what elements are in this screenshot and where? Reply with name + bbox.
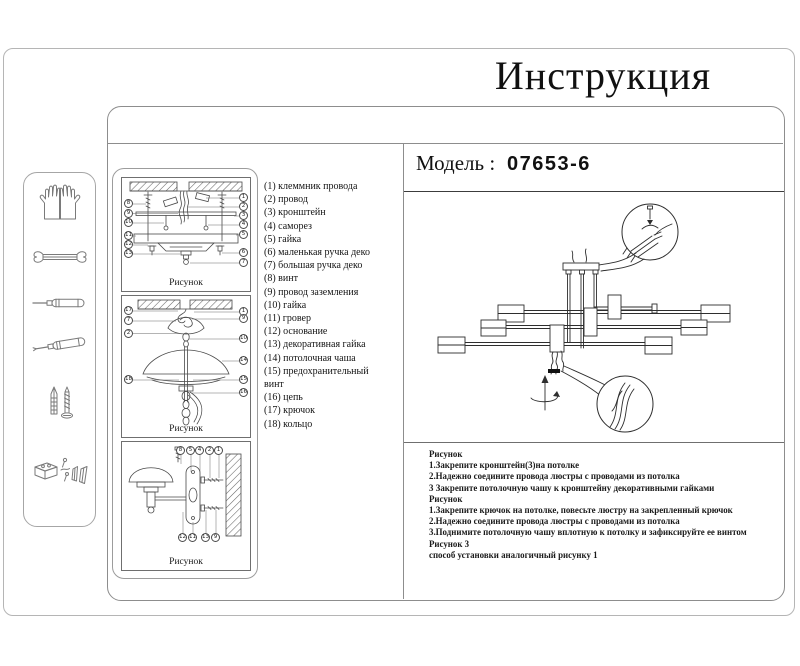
instruction-line: 2.Надежно соедините провода люстры с про… (429, 516, 759, 527)
part-item: (18) кольцо (264, 418, 386, 431)
anchor-and-screw-icon (43, 385, 77, 421)
callout-number: 17 (124, 306, 133, 315)
part-item: (8) винт (264, 272, 386, 285)
part-item: (6) маленькая ручка деко (264, 246, 386, 259)
part-item: (11) гровер (264, 312, 386, 325)
part-item: (10) гайка (264, 299, 386, 312)
callout-number: 11 (188, 533, 197, 542)
callout-number: 9 (239, 314, 248, 323)
instruction-line: способ установки аналогичный рисунку 1 (429, 550, 759, 561)
figure-3-drawing (122, 442, 250, 570)
instruction-line: Рисунок (429, 494, 759, 505)
part-item: (14) потолочная чаша (264, 352, 386, 365)
callout-number: 4 (239, 220, 248, 229)
callout-number: 13 (201, 533, 210, 542)
callout-number: 2 (239, 202, 248, 211)
chandelier-assembly-diagram (404, 196, 784, 440)
callout-number: 7 (124, 316, 133, 325)
callout-number: 11 (124, 231, 133, 240)
callout-number: 6 (239, 248, 248, 257)
part-item: (2) провод (264, 193, 386, 206)
figure-1-box: 8910111213 1234567 Рисунок (121, 177, 251, 292)
part-item: (4) саморез (264, 220, 386, 233)
assembly-instructions: Рисунок1.Закрепите кронштейн(3)на потолк… (429, 449, 759, 561)
instruction-line: 2.Надежно соедините провода люстры с про… (429, 471, 759, 482)
part-item: (17) крючок (264, 404, 386, 417)
callout-number: 16 (239, 388, 248, 397)
callout-number: 3 (239, 211, 248, 220)
instruction-line: 3.Поднимите потолочную чашу вплотную к п… (429, 527, 759, 538)
callout-number: 5 (239, 230, 248, 239)
instruction-sheet: Инструкция (0, 0, 800, 666)
instruction-line: Рисунок 3 (429, 539, 759, 550)
callout-number: 12 (124, 240, 133, 249)
callout-number: 9 (124, 209, 133, 218)
callout-number: 9 (211, 533, 220, 542)
callout-number: 13 (124, 249, 133, 258)
callout-number: 18 (124, 375, 133, 384)
part-item: (5) гайка (264, 233, 386, 246)
callout-number: 2 (124, 329, 133, 338)
gloves-icon (36, 181, 83, 221)
callout-number: 10 (239, 334, 248, 343)
wrench-icon (32, 247, 88, 267)
model-underline (404, 191, 784, 192)
callout-number: 12 (178, 533, 187, 542)
figure-2-caption: Рисунок (122, 424, 250, 434)
part-item: (15) предохранительный винт (264, 365, 386, 391)
figure-3-callouts-top: 85421 (176, 446, 223, 455)
callout-number: 8 (176, 446, 185, 455)
callout-number: 7 (239, 258, 248, 267)
figure-2-box: 177218 1910141516 Рисунок (121, 295, 251, 438)
callout-number: 4 (195, 446, 204, 455)
figure-1-caption: Рисунок (122, 278, 250, 288)
instruction-line: Рисунок (429, 449, 759, 460)
figure-3-callouts-bottom: 1211139 (178, 533, 220, 542)
callout-number: 1 (214, 446, 223, 455)
callout-number: 8 (124, 199, 133, 208)
figure-2-callouts-left: 177218 (124, 306, 133, 384)
part-item: (16) цепь (264, 391, 386, 404)
flat-screwdriver-icon (32, 297, 88, 309)
callout-number: 15 (239, 375, 248, 384)
figure-1-drawing (122, 178, 250, 291)
callout-number: 10 (124, 218, 133, 227)
part-item: (7) большая ручка деко (264, 259, 386, 272)
part-item: (12) основание (264, 325, 386, 338)
part-item: (3) кронштейн (264, 206, 386, 219)
model-number: 07653-6 (507, 153, 591, 176)
figure-2-callouts-right: 1910141516 (239, 307, 248, 397)
figure-3-box: 85421 1211139 Рисунок (121, 441, 251, 571)
instruction-line: 1.Закрепите кронштейн(3)на потолке (429, 460, 759, 471)
phillips-screwdriver-icon (31, 333, 89, 357)
callout-number: 2 (205, 446, 214, 455)
callout-number: 1 (239, 193, 248, 202)
callout-number: 14 (239, 356, 248, 365)
figure-2-drawing (122, 296, 250, 437)
instructions-divider (404, 442, 784, 443)
mounting-hardware-icon (31, 455, 89, 487)
part-item: (1) клеммник провода (264, 180, 386, 193)
part-item: (9) провод заземления (264, 286, 386, 299)
callout-number: 5 (186, 446, 195, 455)
figure-3-caption: Рисунок (122, 557, 250, 567)
figure-1-callouts-right: 1234567 (239, 193, 248, 267)
figure-1-callouts-left: 8910111213 (124, 199, 133, 258)
instruction-line: 3 Закрепите потолочную чашу к кронштейну… (429, 483, 759, 494)
page-title: Инструкция (448, 52, 758, 99)
parts-list: (1) клеммник провода(2) провод(3) кроншт… (264, 180, 386, 431)
part-item: (13) декоративная гайка (264, 338, 386, 351)
panel-top-divider (108, 143, 783, 144)
tools-sidebar (23, 172, 96, 527)
model-label: Модель : (416, 151, 495, 176)
instruction-line: 1.Закрепите крючок на потолке, повесьте … (429, 505, 759, 516)
